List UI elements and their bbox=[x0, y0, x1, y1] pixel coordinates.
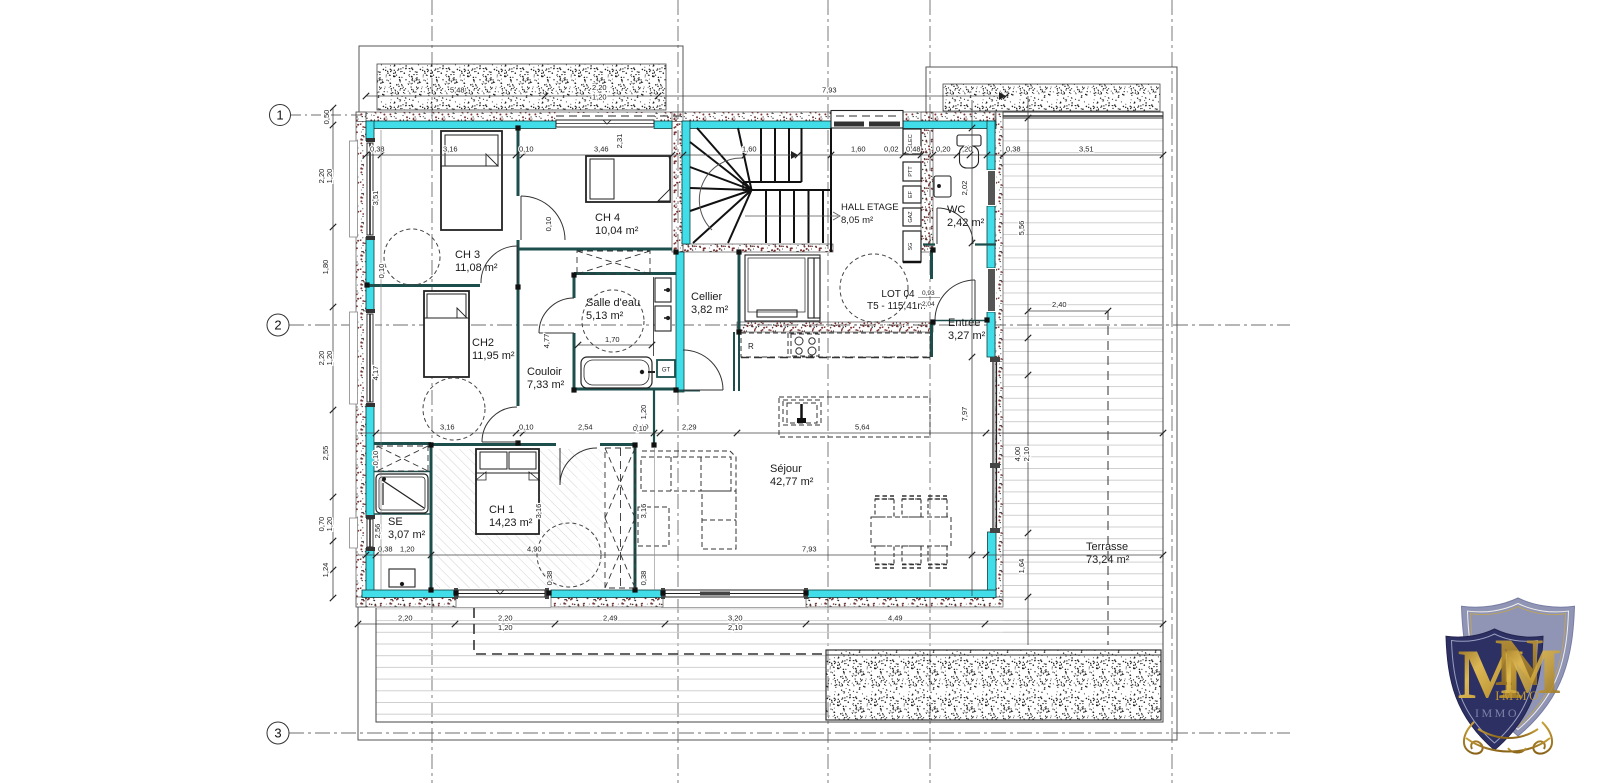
svg-text:WC: WC bbox=[947, 204, 965, 216]
svg-text:5,64: 5,64 bbox=[855, 423, 870, 432]
svg-text:2,55: 2,55 bbox=[321, 446, 330, 461]
svg-text:11,08 m²: 11,08 m² bbox=[455, 262, 498, 274]
svg-text:2,10: 2,10 bbox=[728, 623, 743, 632]
svg-text:3,16: 3,16 bbox=[440, 423, 455, 432]
svg-text:3,16: 3,16 bbox=[443, 145, 458, 154]
svg-text:3,51: 3,51 bbox=[371, 191, 380, 206]
svg-text:0,10: 0,10 bbox=[544, 217, 553, 232]
svg-text:HALL ETAGE: HALL ETAGE bbox=[841, 202, 899, 213]
svg-text:0,02: 0,02 bbox=[884, 145, 899, 154]
svg-text:2,20: 2,20 bbox=[498, 614, 513, 623]
svg-text:2: 2 bbox=[274, 318, 281, 333]
svg-text:0,48: 0,48 bbox=[906, 145, 921, 154]
svg-text:2,40: 2,40 bbox=[1052, 300, 1067, 309]
svg-text:0,10: 0,10 bbox=[519, 145, 534, 154]
svg-text:3,16: 3,16 bbox=[639, 504, 648, 519]
svg-text:3,82 m²: 3,82 m² bbox=[691, 304, 729, 316]
svg-text:4,00: 4,00 bbox=[1013, 447, 1022, 462]
svg-text:3,27 m²: 3,27 m² bbox=[948, 330, 986, 342]
svg-text:PTT: PTT bbox=[908, 166, 914, 177]
svg-text:3,20: 3,20 bbox=[728, 614, 743, 623]
svg-text:1,20: 1,20 bbox=[325, 517, 334, 532]
svg-text:Couloir: Couloir bbox=[527, 366, 562, 378]
svg-text:4,90: 4,90 bbox=[527, 545, 542, 554]
svg-text:5,48: 5,48 bbox=[450, 86, 465, 95]
svg-text:CH 1: CH 1 bbox=[489, 504, 514, 516]
svg-text:3,07 m²: 3,07 m² bbox=[388, 529, 426, 541]
svg-text:IMMO: IMMO bbox=[1495, 689, 1540, 703]
svg-text:1,24: 1,24 bbox=[321, 563, 330, 578]
svg-text:0,10: 0,10 bbox=[633, 426, 647, 433]
svg-text:7,33 m²: 7,33 m² bbox=[527, 379, 565, 391]
svg-text:1,80: 1,80 bbox=[321, 260, 330, 275]
svg-text:Salle d'eau: Salle d'eau bbox=[586, 297, 640, 309]
svg-text:14,23 m²: 14,23 m² bbox=[489, 517, 533, 529]
svg-text:LOT 04: LOT 04 bbox=[881, 289, 915, 300]
svg-text:7,97: 7,97 bbox=[960, 407, 969, 422]
svg-text:0,93: 0,93 bbox=[922, 290, 935, 297]
svg-text:7,93: 7,93 bbox=[802, 545, 817, 554]
svg-text:1,60: 1,60 bbox=[851, 145, 866, 154]
svg-text:IMMO: IMMO bbox=[1475, 706, 1519, 720]
svg-text:2,04: 2,04 bbox=[922, 301, 935, 308]
svg-text:,20: ,20 bbox=[962, 145, 972, 154]
svg-text:Séjour: Séjour bbox=[770, 463, 802, 475]
svg-text:GT: GT bbox=[662, 368, 671, 374]
svg-text:3,51: 3,51 bbox=[1079, 145, 1094, 154]
svg-text:2,20: 2,20 bbox=[592, 83, 607, 92]
svg-text:CH 4: CH 4 bbox=[595, 212, 620, 224]
svg-text:1,60: 1,60 bbox=[742, 145, 757, 154]
svg-text:3: 3 bbox=[274, 726, 281, 741]
svg-text:Terrasse: Terrasse bbox=[1086, 541, 1128, 553]
svg-text:1,64: 1,64 bbox=[1017, 559, 1026, 574]
svg-text:1,20: 1,20 bbox=[498, 623, 513, 632]
svg-text:0,38: 0,38 bbox=[1006, 145, 1021, 154]
svg-text:Cellier: Cellier bbox=[691, 291, 723, 303]
svg-text:1,20: 1,20 bbox=[400, 545, 415, 554]
svg-text:3,16: 3,16 bbox=[534, 504, 543, 519]
svg-text:2,02: 2,02 bbox=[960, 181, 969, 196]
svg-text:4,17: 4,17 bbox=[371, 366, 380, 381]
svg-text:0,38: 0,38 bbox=[545, 571, 554, 586]
svg-text:2,54: 2,54 bbox=[578, 423, 593, 432]
svg-text:1,20: 1,20 bbox=[639, 405, 648, 420]
svg-text:2,20: 2,20 bbox=[398, 614, 413, 623]
svg-text:4,77: 4,77 bbox=[542, 334, 551, 349]
svg-text:5,13 m²: 5,13 m² bbox=[586, 310, 624, 322]
svg-text:4,49: 4,49 bbox=[888, 614, 903, 623]
svg-text:2,31: 2,31 bbox=[615, 134, 624, 149]
svg-text:0,38: 0,38 bbox=[639, 571, 648, 586]
svg-text:1,20: 1,20 bbox=[592, 93, 607, 102]
svg-text:0,50: 0,50 bbox=[322, 110, 331, 125]
svg-text:0,38: 0,38 bbox=[370, 145, 385, 154]
svg-text:CH2: CH2 bbox=[472, 337, 494, 349]
svg-text:8,05 m²: 8,05 m² bbox=[841, 215, 873, 226]
svg-text:7,93: 7,93 bbox=[822, 86, 837, 95]
svg-text:1: 1 bbox=[276, 108, 283, 123]
svg-text:2,42 m²: 2,42 m² bbox=[947, 217, 985, 229]
svg-text:3,46: 3,46 bbox=[594, 145, 609, 154]
svg-text:10,04 m²: 10,04 m² bbox=[595, 225, 639, 237]
svg-text:Entrée: Entrée bbox=[948, 317, 980, 329]
svg-text:11,95 m²: 11,95 m² bbox=[472, 350, 515, 362]
svg-text:5,56: 5,56 bbox=[1017, 221, 1026, 236]
svg-text:0,10: 0,10 bbox=[377, 264, 386, 279]
svg-text:1,20: 1,20 bbox=[325, 169, 334, 184]
svg-text:0,38: 0,38 bbox=[378, 545, 393, 554]
svg-text:1,70: 1,70 bbox=[605, 335, 620, 344]
svg-text:42,77 m²: 42,77 m² bbox=[770, 476, 814, 488]
svg-text:R: R bbox=[748, 342, 754, 351]
svg-text:2,49: 2,49 bbox=[603, 614, 618, 623]
svg-text:EF: EF bbox=[908, 190, 914, 198]
svg-text:2,29: 2,29 bbox=[682, 423, 697, 432]
svg-text:0,10: 0,10 bbox=[519, 423, 534, 432]
svg-text:CH 3: CH 3 bbox=[455, 249, 480, 261]
svg-text:SG: SG bbox=[908, 243, 914, 251]
svg-text:0,10: 0,10 bbox=[371, 451, 380, 466]
svg-text:GAZ: GAZ bbox=[908, 211, 914, 223]
svg-text:SE: SE bbox=[388, 516, 403, 528]
svg-text:T5 - 115,41m²: T5 - 115,41m² bbox=[867, 301, 930, 312]
svg-text:0,20: 0,20 bbox=[936, 145, 951, 154]
svg-text:1,20: 1,20 bbox=[325, 351, 334, 366]
svg-text:2,10: 2,10 bbox=[1022, 447, 1031, 462]
svg-text:2,56: 2,56 bbox=[373, 524, 382, 539]
